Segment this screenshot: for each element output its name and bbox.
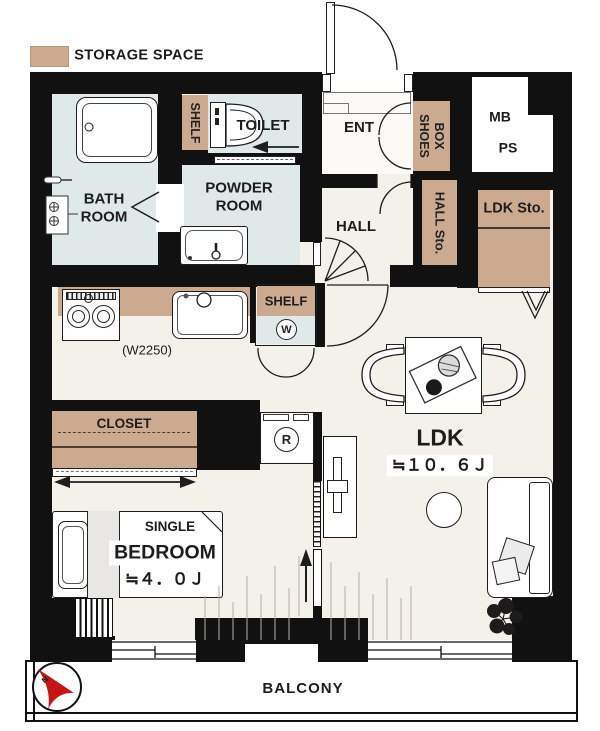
toilet-sliding-door <box>214 156 296 164</box>
compass: N <box>33 663 81 711</box>
toilet-shelf-label: SHELF <box>188 102 202 143</box>
sofa-cushion <box>492 557 520 585</box>
wall-segment <box>390 265 422 287</box>
stove-knob-icon <box>84 294 93 303</box>
burner-icon <box>97 310 110 323</box>
bathtub-inner <box>82 103 152 157</box>
closet-divider <box>52 446 197 448</box>
chair-armrest <box>483 344 501 352</box>
balcony-label: BALCONY <box>262 680 343 698</box>
entrance-jamb <box>322 74 331 92</box>
toilet-label: TOILET <box>236 117 289 135</box>
wall-segment <box>73 636 115 662</box>
wall-segment <box>197 400 260 470</box>
shoes-box-label-line1: SHOES <box>417 114 431 158</box>
wall-segment <box>553 72 572 662</box>
legend-storage-swatch <box>30 46 69 67</box>
entrance-step-notch <box>323 103 349 114</box>
dining-table <box>405 337 482 414</box>
wall-segment <box>30 598 73 662</box>
balcony-door-threshold <box>245 644 318 662</box>
wall-segment <box>422 265 457 287</box>
washer-icon: W <box>276 319 297 340</box>
partition-rail <box>313 481 321 547</box>
wall-segment <box>528 77 553 115</box>
pillow-inner <box>62 526 84 584</box>
refrigerator-icon: R <box>274 427 299 452</box>
ldk-size-label: ≒１０．６Ｊ <box>387 455 493 476</box>
floor-plan: STORAGE SPACE MB PS SHELF SHOES <box>0 0 600 731</box>
wall-segment <box>313 412 322 481</box>
bathroom-door-recess <box>156 184 184 232</box>
louver-box <box>73 598 113 638</box>
balcony-railing <box>25 720 578 722</box>
entrance-door-leaf <box>326 2 335 74</box>
chair-armrest <box>483 398 501 406</box>
pipe-space-label: PS <box>499 140 518 157</box>
ldk-label: LDK <box>416 424 463 451</box>
wall-segment <box>30 72 302 94</box>
partition-sliding-door <box>313 549 322 607</box>
wall-segment <box>158 92 182 265</box>
kitchen-sink-basin <box>177 295 243 335</box>
vanity-basin <box>185 230 243 261</box>
refrigerator-handle <box>293 414 309 421</box>
ldk-storage-divider <box>478 227 550 229</box>
refrigerator-handle <box>263 414 289 421</box>
bedroom-window <box>112 640 196 662</box>
sofa-backrest <box>529 482 550 594</box>
compass-circle <box>33 663 81 711</box>
kitchen-shelf-label: SHELF <box>265 293 308 308</box>
shoes-box: SHOES BOX <box>413 101 450 171</box>
ldk-storage-label: LDK Sto. <box>483 200 544 217</box>
closet-sliding-door <box>52 468 197 477</box>
toilet-sliding-door-track <box>217 159 293 160</box>
ldk-window <box>368 640 512 662</box>
shoes-box-label-line2: BOX <box>432 122 446 149</box>
burner-icon <box>72 310 85 323</box>
chair-armrest <box>386 398 404 406</box>
bathroom-label: BATH ROOM <box>81 190 128 225</box>
closet-sliding-track <box>56 471 193 472</box>
wall-segment <box>512 596 572 662</box>
tv-stand <box>327 480 348 493</box>
north-arrow-icon <box>38 669 74 710</box>
bed-type-label: SINGLE <box>140 518 200 536</box>
closet-rod <box>58 432 190 433</box>
meter-box-label: MB <box>489 109 511 126</box>
entrance-label: ENT <box>344 119 374 137</box>
powder-room-door-leaf <box>313 242 321 266</box>
wall-segment <box>182 150 208 165</box>
kitchen-width-label: (W2250) <box>122 342 172 357</box>
hall-storage: HALL Sto. <box>422 180 457 265</box>
closet-label: CLOSET <box>97 416 152 432</box>
wall-segment <box>300 160 322 242</box>
hall-label: HALL <box>336 218 376 236</box>
legend-label: STORAGE SPACE <box>74 47 204 64</box>
hall-doorway-gap <box>377 174 411 188</box>
entrance-door-arc <box>332 5 397 70</box>
powder-room-label: POWDER ROOM <box>205 179 273 214</box>
wall-segment <box>195 618 368 644</box>
compass-north-label: N <box>40 674 50 685</box>
stool <box>426 492 462 528</box>
balcony-railing <box>25 712 578 714</box>
chair-armrest <box>386 344 404 352</box>
wall-segment <box>457 174 478 288</box>
ldk-storage-track <box>478 287 550 293</box>
toilet-tank <box>210 102 226 148</box>
bedroom-size-label: ≒４．０Ｊ <box>120 569 210 590</box>
wall-segment <box>30 72 52 662</box>
bedroom-label: BEDROOM <box>109 541 221 566</box>
toilet-shelf: SHELF <box>182 95 208 150</box>
hall-storage-label: HALL Sto. <box>432 191 447 254</box>
entrance-jamb <box>404 74 413 92</box>
